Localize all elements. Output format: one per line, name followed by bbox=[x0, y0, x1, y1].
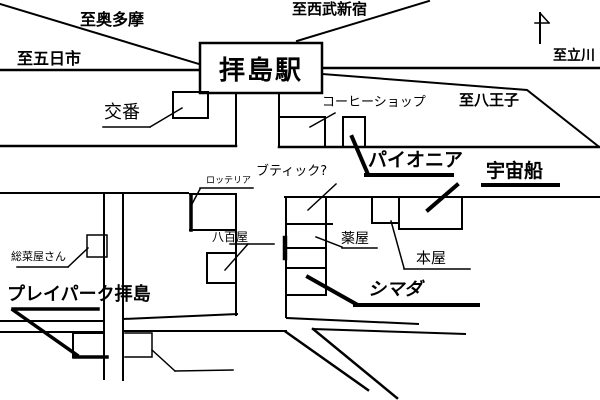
road-southeast-upper bbox=[287, 318, 418, 324]
place-label-koban: 交番 bbox=[104, 104, 140, 122]
north-arrow-icon bbox=[535, 13, 549, 43]
haijima-hand-drawn-map: 拝島駅 至奥多摩 至五日市 至西武新宿 至立川 至八王子 交番 コーヒーショップ… bbox=[0, 0, 600, 400]
coffee-shop-pointer-slash bbox=[310, 113, 335, 127]
place-label-pioneer: パイオニア bbox=[368, 151, 463, 170]
place-label-boutique: ブティック? bbox=[256, 165, 327, 178]
direction-label-tachikawa: 至立川 bbox=[553, 49, 595, 63]
direction-label-okutama: 至奥多摩 bbox=[80, 12, 144, 28]
place-label-greengrocer: 八百屋 bbox=[212, 231, 248, 243]
place-label-deli: 総菜屋さん bbox=[11, 251, 66, 262]
greengrocer-building bbox=[207, 253, 236, 283]
direction-label-itsukaichi: 至五日市 bbox=[17, 51, 81, 67]
direction-label-seibu-shinjuku: 至西武新宿 bbox=[292, 2, 367, 17]
place-label-bookstore: 本屋 bbox=[416, 251, 446, 266]
road-southeast-lower bbox=[313, 329, 465, 334]
station-label: 拝島駅 bbox=[200, 43, 322, 93]
road-lower-mid-upper bbox=[123, 314, 237, 319]
place-label-coffee-shop: コーヒーショップ bbox=[322, 96, 426, 109]
lotteria-pointer-slash bbox=[192, 189, 200, 204]
koban-building bbox=[173, 92, 208, 118]
place-label-pharmacy: 薬屋 bbox=[341, 232, 369, 246]
coffee-shop-building-1 bbox=[279, 117, 325, 147]
shimada-pointer-slash bbox=[308, 277, 356, 304]
place-label-playpark: プレイパーク拝島 bbox=[7, 286, 151, 304]
corner-building-lane bbox=[175, 370, 233, 371]
road-to-hachioji bbox=[322, 74, 598, 146]
place-label-shimada: シマダ bbox=[368, 281, 422, 299]
direction-label-hachioji: 至八王子 bbox=[459, 93, 519, 108]
deli-pointer-slash bbox=[68, 248, 88, 267]
road-diagonal-b bbox=[313, 329, 397, 398]
place-label-lotteria: ロッテリア bbox=[206, 177, 251, 186]
corner-building-slash bbox=[152, 350, 175, 371]
corner-building bbox=[125, 333, 152, 357]
place-label-spaceship: 宇宙船 bbox=[486, 162, 543, 181]
pharmacy-pointer-slash bbox=[316, 237, 342, 247]
